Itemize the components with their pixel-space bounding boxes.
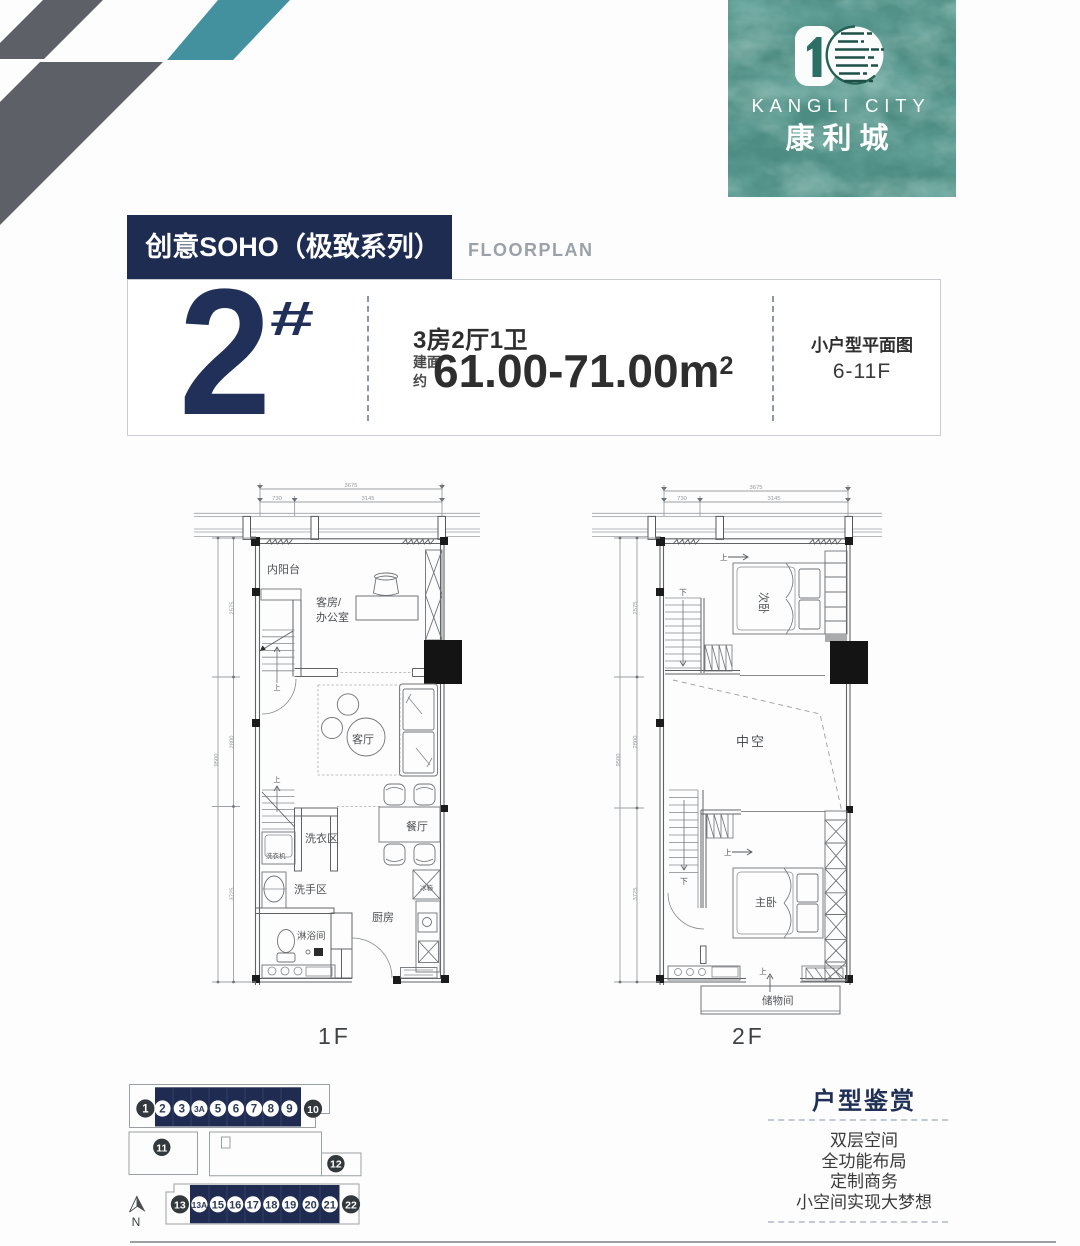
svg-text:3145: 3145 — [362, 496, 375, 502]
svg-text:5: 5 — [215, 1104, 222, 1116]
svg-text:2F: 2F — [732, 1023, 765, 1049]
svg-text:11: 11 — [156, 1142, 167, 1154]
svg-text:13A: 13A — [192, 1200, 208, 1210]
svg-text:洗衣区: 洗衣区 — [305, 831, 338, 845]
svg-text:内阳台: 内阳台 — [267, 562, 300, 576]
svg-text:13: 13 — [174, 1200, 186, 1212]
svg-text:12: 12 — [330, 1159, 342, 1171]
svg-text:17: 17 — [247, 1199, 259, 1211]
svg-text:10: 10 — [307, 1104, 319, 1116]
svg-text:2575: 2575 — [230, 602, 236, 615]
svg-text:8: 8 — [268, 1104, 275, 1116]
svg-text:18: 18 — [265, 1199, 277, 1211]
svg-text:次卧: 次卧 — [757, 592, 771, 614]
svg-text:KANGLI CITY: KANGLI CITY — [752, 95, 931, 116]
svg-text:3725: 3725 — [230, 888, 236, 901]
svg-text:3145: 3145 — [768, 496, 781, 502]
svg-text:康利城: 康利城 — [785, 121, 896, 155]
svg-text:洗手区: 洗手区 — [294, 882, 327, 896]
svg-text:N: N — [132, 1215, 141, 1229]
svg-text:730: 730 — [677, 496, 687, 502]
svg-text:上: 上 — [274, 775, 281, 784]
svg-text:上: 上 — [724, 848, 732, 857]
svg-text:3675: 3675 — [750, 485, 763, 491]
svg-text:客厅: 客厅 — [352, 732, 374, 746]
svg-text:22: 22 — [345, 1200, 357, 1212]
svg-text:餐厅: 餐厅 — [406, 819, 428, 833]
svg-text:19: 19 — [284, 1199, 296, 1211]
svg-text:3725: 3725 — [633, 888, 639, 901]
svg-text:上: 上 — [759, 967, 767, 976]
svg-text:下: 下 — [680, 877, 688, 886]
svg-text:办公室: 办公室 — [316, 610, 349, 624]
svg-text:3675: 3675 — [345, 483, 358, 489]
svg-text:15: 15 — [212, 1199, 224, 1211]
svg-text:16: 16 — [229, 1199, 241, 1211]
svg-text:上: 上 — [274, 683, 281, 692]
svg-text:2800: 2800 — [230, 736, 236, 749]
svg-text:中空: 中空 — [736, 734, 766, 749]
svg-text:淋浴间: 淋浴间 — [297, 930, 326, 942]
svg-text:6: 6 — [233, 1104, 239, 1116]
svg-text:21: 21 — [324, 1199, 336, 1211]
svg-text:9: 9 — [286, 1104, 292, 1116]
svg-text:3A: 3A — [194, 1104, 205, 1114]
svg-text:7: 7 — [251, 1104, 257, 1116]
svg-text:储物间: 储物间 — [762, 994, 794, 1007]
svg-text:1F: 1F — [318, 1023, 351, 1049]
svg-text:2: 2 — [159, 1104, 165, 1116]
svg-text:厨房: 厨房 — [372, 911, 394, 924]
svg-text:20: 20 — [304, 1199, 316, 1211]
svg-text:客房/: 客房/ — [316, 595, 342, 609]
svg-text:3: 3 — [179, 1104, 185, 1116]
svg-text:洗衣机: 洗衣机 — [266, 851, 286, 860]
svg-text:730: 730 — [272, 496, 282, 502]
svg-text:2800: 2800 — [633, 736, 639, 749]
svg-text:1: 1 — [142, 1104, 149, 1116]
svg-text:下: 下 — [679, 588, 687, 597]
svg-text:9500: 9500 — [616, 754, 622, 767]
svg-text:2575: 2575 — [633, 602, 639, 615]
svg-text:9500: 9500 — [214, 754, 220, 767]
svg-text:上: 上 — [720, 553, 728, 562]
svg-text:主卧: 主卧 — [755, 896, 777, 909]
